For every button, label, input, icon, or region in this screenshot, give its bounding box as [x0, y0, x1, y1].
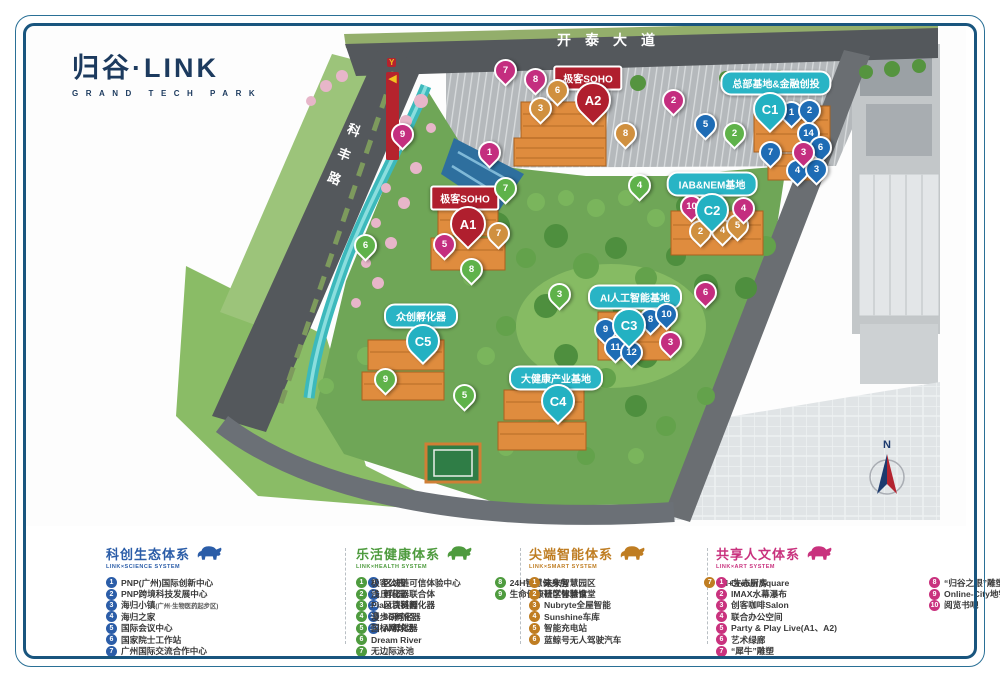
brand-title: 归谷·LINK: [72, 46, 262, 85]
legend-item-label: 无边际泳池: [371, 645, 414, 657]
legend-item: 7“犀牛”雕塑: [716, 645, 837, 656]
legend-item-label: 阅览书吧: [944, 599, 978, 611]
legend-item-number: 6: [356, 634, 367, 645]
rhino-icon: [619, 544, 646, 562]
legend-item: 6国家院士工作站: [106, 634, 218, 645]
rhino-icon: [196, 544, 223, 562]
legend-item: 7广州国际交流合作中心: [106, 645, 218, 656]
entrance-sign: Y ◀: [386, 72, 399, 160]
legend-item-number: 7: [704, 577, 715, 588]
legend-item: 4漫步研习径: [356, 611, 422, 622]
legend-item: 2社区智慧食堂: [529, 588, 621, 599]
legend-item-number: 3: [356, 600, 367, 611]
legend-item-number: 5: [106, 623, 117, 634]
legend-item-number: 7: [356, 646, 367, 657]
legend-item-number: 7: [106, 646, 117, 657]
flag-icon: Y: [387, 58, 396, 67]
legend-item-label: 国标网球场: [371, 622, 414, 634]
legend-item: 1Dream Square: [716, 577, 837, 588]
legend-item-number: 4: [356, 611, 367, 622]
legend-item-label: 国际会议中心: [121, 622, 173, 634]
legend-item-label: 海归小镇: [121, 599, 155, 611]
legend-item-number: 7: [716, 646, 727, 657]
legend-item-label: 联合办公空间: [731, 611, 783, 623]
legend-item-number: 5: [529, 623, 540, 634]
compass: N: [862, 440, 912, 504]
legend-item: 10阅览书吧: [929, 600, 1000, 611]
legend-item-label: “犀牛”雕塑: [731, 645, 774, 657]
legend-item: 3Plant百科园: [356, 600, 422, 611]
legend-item-label: Plant百科园: [371, 599, 418, 611]
legend-item-number: 3: [716, 600, 727, 611]
legend-item: 4联合办公空间: [716, 611, 837, 622]
map-illustration: [26, 26, 966, 526]
legend-section-subtitle: LINK×HEALTH SYSTEM: [356, 564, 440, 570]
legend-item: 5国际会议中心: [106, 623, 218, 634]
legend-item-number: 6: [106, 634, 117, 645]
legend-item-number: 1: [106, 577, 117, 588]
legend-item-number: 4: [106, 611, 117, 622]
legend-item: 2PNP跨境科技发展中心: [106, 588, 218, 599]
legend-item-label: 漫步研习径: [371, 611, 414, 623]
legend-item-number: 2: [529, 589, 540, 600]
legend-item: 2IMAX水幕瀑布: [716, 588, 837, 599]
legend-item-number: 3: [106, 600, 117, 611]
legend-item-label: 蓝鲸号无人驾驶汽车: [544, 634, 621, 646]
area-label: 总部基地&金融创投: [720, 71, 831, 96]
legend-item: 5智能充电站: [529, 623, 621, 634]
legend-section-title: 科创生态体系: [106, 544, 190, 563]
legend-item-number: 6: [716, 634, 727, 645]
legend-item-number: 1: [356, 577, 367, 588]
legend-item-label: “归谷之眼”雕塑: [944, 577, 1000, 589]
legend-item: 6蓝鲸号无人驾驶汽车: [529, 634, 621, 645]
legend-item-number: 2: [356, 589, 367, 600]
legend-item-label: 国家院士工作站: [121, 634, 181, 646]
legend-item-label: Online-City地铁出行: [944, 588, 1000, 600]
legend-section-title: 尖端智能体系: [529, 544, 613, 563]
brand-subtitle: GRAND TECH PARK: [72, 89, 262, 98]
legend-item: 8“归谷之眼”雕塑: [929, 577, 1000, 588]
brand-logo: 归谷·LINK GRAND TECH PARK: [72, 46, 262, 98]
legend-section-subtitle: LINK×SMART SYSTEM: [529, 564, 613, 570]
legend-item: 6Dream River: [356, 634, 422, 645]
legend-item-number: 2: [716, 589, 727, 600]
legend-item-number: 10: [929, 600, 940, 611]
legend-item-label: Sunshine车库: [544, 611, 600, 623]
legend-item: 7无边际泳池: [356, 645, 422, 656]
legend-item-number: 5: [356, 623, 367, 634]
legend-item-label: Dream Square: [731, 578, 789, 588]
legend-item: 1极客公园: [356, 577, 422, 588]
legend-item-number: 8: [495, 577, 506, 588]
legend-item-number: 9: [929, 589, 940, 600]
legend-section-subtitle: LINK×ART SYSTEM: [716, 564, 800, 570]
legend-item: 6艺术绿廊: [716, 634, 837, 645]
legend-item-number: 3: [529, 600, 540, 611]
north-arrow-icon: [865, 450, 909, 500]
legend-section-subtitle: LINK×SCIENCE SYSTEM: [106, 564, 190, 570]
road-label-kaitai-avenue: 开泰大道: [543, 30, 669, 50]
legend-item-label: IMAX水幕瀑布: [731, 588, 787, 600]
legend-item-number: 1: [529, 577, 540, 588]
legend-item: 1PNP(广州)国际创新中心: [106, 577, 218, 588]
legend-item-number: 2: [106, 589, 117, 600]
legend-item-label: 艺术绿廊: [731, 634, 765, 646]
legend-item-label: 浅丘花园: [371, 588, 405, 600]
legend-item-label: 社区智慧食堂: [544, 588, 596, 600]
legend-item-number: 6: [529, 634, 540, 645]
legend-item: 3创客咖啡Salon: [716, 600, 837, 611]
legend-section-title: 乐活健康体系: [356, 544, 440, 563]
legend-item-label: 广州国际交流合作中心: [121, 645, 207, 657]
legend-item: 4Sunshine车库: [529, 611, 621, 622]
legend-item-label: 创客咖啡Salon: [731, 599, 789, 611]
legend-item-label: 极客公园: [371, 577, 405, 589]
legend-item-label: 海归之家: [121, 611, 155, 623]
legend-section: 共享人文体系LINK×ART SYSTEM1Dream Square2IMAX水…: [716, 544, 1000, 657]
legend-item: 9Online-City地铁出行: [929, 588, 1000, 599]
legend-item: 3Nubryte全屋智能: [529, 600, 621, 611]
legend-item-number: 9: [495, 589, 506, 600]
legend-item: 4海归之家: [106, 611, 218, 622]
legend-item-sublabel: (广州·生物医药起步区): [155, 601, 218, 610]
legend-item: 2浅丘花园: [356, 588, 422, 599]
rhino-icon: [806, 544, 833, 562]
legend-item-number: 4: [716, 611, 727, 622]
rhino-icon: [446, 544, 473, 562]
legend-item: 5国标网球场: [356, 623, 422, 634]
legend-item-label: Nubryte全屋智能: [544, 599, 611, 611]
legend-item-label: PNP跨境科技发展中心: [121, 588, 207, 600]
north-label: N: [862, 440, 912, 450]
legend-item-label: Dream River: [371, 635, 422, 645]
legend-item: 1未来智慧园区: [529, 577, 621, 588]
left-arrow-icon: ◀: [388, 72, 396, 86]
legend-item-label: Party & Play Live(A1、A2): [731, 622, 837, 634]
legend-item-number: 8: [929, 577, 940, 588]
legend-item-label: PNP(广州)国际创新中心: [121, 577, 213, 589]
legend-item: 3海归小镇(广州·生物医药起步区): [106, 600, 218, 611]
legend-item-number: 5: [716, 623, 727, 634]
legend-item: 5Party & Play Live(A1、A2): [716, 623, 837, 634]
legend-item-number: 4: [529, 611, 540, 622]
legend-item-label: 智能充电站: [544, 622, 587, 634]
legend-item-label: 未来智慧园区: [544, 577, 596, 589]
legend-item-number: 1: [716, 577, 727, 588]
legend-section-title: 共享人文体系: [716, 544, 800, 563]
